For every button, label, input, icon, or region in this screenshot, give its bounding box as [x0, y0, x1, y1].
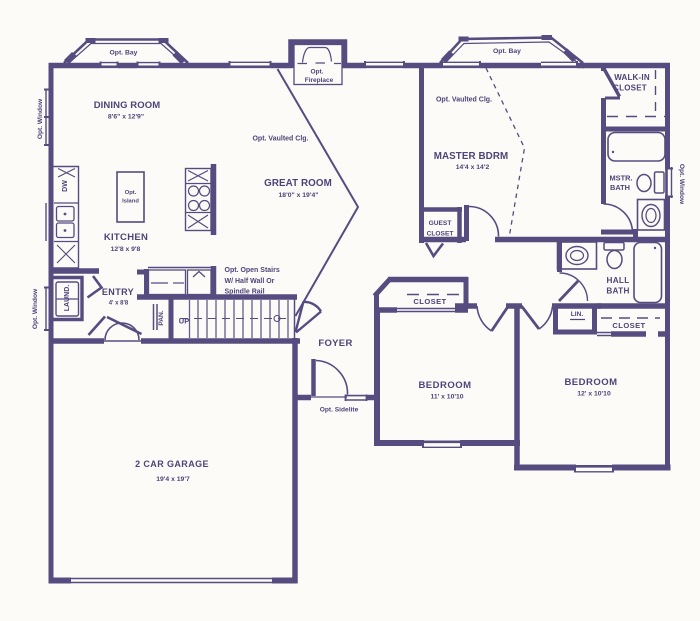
svg-text:Opt.: Opt. — [125, 190, 137, 196]
svg-text:MSTR.: MSTR. — [610, 174, 633, 183]
svg-text:11' x 10'10: 11' x 10'10 — [430, 394, 463, 401]
svg-text:Fireplace: Fireplace — [305, 77, 334, 84]
svg-text:BEDROOM: BEDROOM — [564, 377, 617, 388]
svg-text:Island: Island — [122, 199, 139, 205]
svg-text:ENTRY: ENTRY — [102, 287, 134, 297]
svg-text:Opt. Window: Opt. Window — [32, 288, 39, 329]
svg-text:KITCHEN: KITCHEN — [104, 232, 148, 243]
svg-text:19'4 x 19'7: 19'4 x 19'7 — [156, 476, 190, 483]
svg-text:FOYER: FOYER — [318, 338, 352, 349]
svg-text:4' x 8'8: 4' x 8'8 — [109, 301, 129, 307]
svg-text:Opt. Sidelite: Opt. Sidelite — [320, 407, 359, 414]
svg-text:BATH: BATH — [606, 287, 629, 296]
svg-text:Opt. Bay: Opt. Bay — [493, 48, 521, 55]
svg-text:14'4 x 14'2: 14'4 x 14'2 — [456, 164, 490, 171]
svg-text:HALL: HALL — [606, 276, 629, 285]
svg-text:LAUND.: LAUND. — [64, 285, 71, 311]
svg-text:12'8 x 9'8: 12'8 x 9'8 — [111, 246, 141, 253]
svg-text:GREAT ROOM: GREAT ROOM — [264, 178, 332, 189]
svg-text:18'0" x 19'4": 18'0" x 19'4" — [279, 192, 319, 199]
svg-text:Opt.: Opt. — [311, 69, 324, 76]
svg-text:CLOSET: CLOSET — [613, 84, 647, 93]
svg-text:UP: UP — [179, 317, 189, 326]
svg-text:W/ Half Wall Or: W/ Half Wall Or — [225, 278, 275, 285]
svg-text:Spindle Rail: Spindle Rail — [225, 289, 265, 296]
svg-text:WALK-IN: WALK-IN — [614, 73, 650, 82]
svg-text:DINING ROOM: DINING ROOM — [94, 100, 161, 111]
svg-text:Opt. Open Stairs: Opt. Open Stairs — [225, 267, 280, 274]
svg-text:2 CAR GARAGE: 2 CAR GARAGE — [135, 459, 209, 469]
svg-text:PAN.: PAN. — [158, 310, 165, 325]
svg-text:CLOSET: CLOSET — [427, 231, 454, 238]
svg-text:Opt. Vaulted Clg.: Opt. Vaulted Clg. — [436, 97, 492, 104]
svg-text:8'6" x 12'9": 8'6" x 12'9" — [108, 114, 144, 121]
svg-text:CLOSET: CLOSET — [413, 297, 446, 306]
svg-text:LIN.: LIN. — [571, 311, 584, 318]
svg-text:12' x 10'10: 12' x 10'10 — [577, 391, 611, 398]
svg-text:Opt. Vaulted Clg.: Opt. Vaulted Clg. — [252, 136, 308, 143]
svg-text:Opt. Window: Opt. Window — [37, 98, 44, 139]
svg-text:MASTER BDRM: MASTER BDRM — [434, 151, 509, 162]
svg-text:Opt. Bay: Opt. Bay — [110, 50, 138, 57]
svg-text:BEDROOM: BEDROOM — [418, 380, 471, 391]
svg-text:GUEST: GUEST — [429, 220, 452, 227]
svg-text:BATH: BATH — [610, 183, 630, 192]
svg-text:CLOSET: CLOSET — [612, 321, 645, 330]
svg-text:DW: DW — [62, 180, 69, 192]
svg-text:Opt. Window: Opt. Window — [678, 164, 685, 205]
